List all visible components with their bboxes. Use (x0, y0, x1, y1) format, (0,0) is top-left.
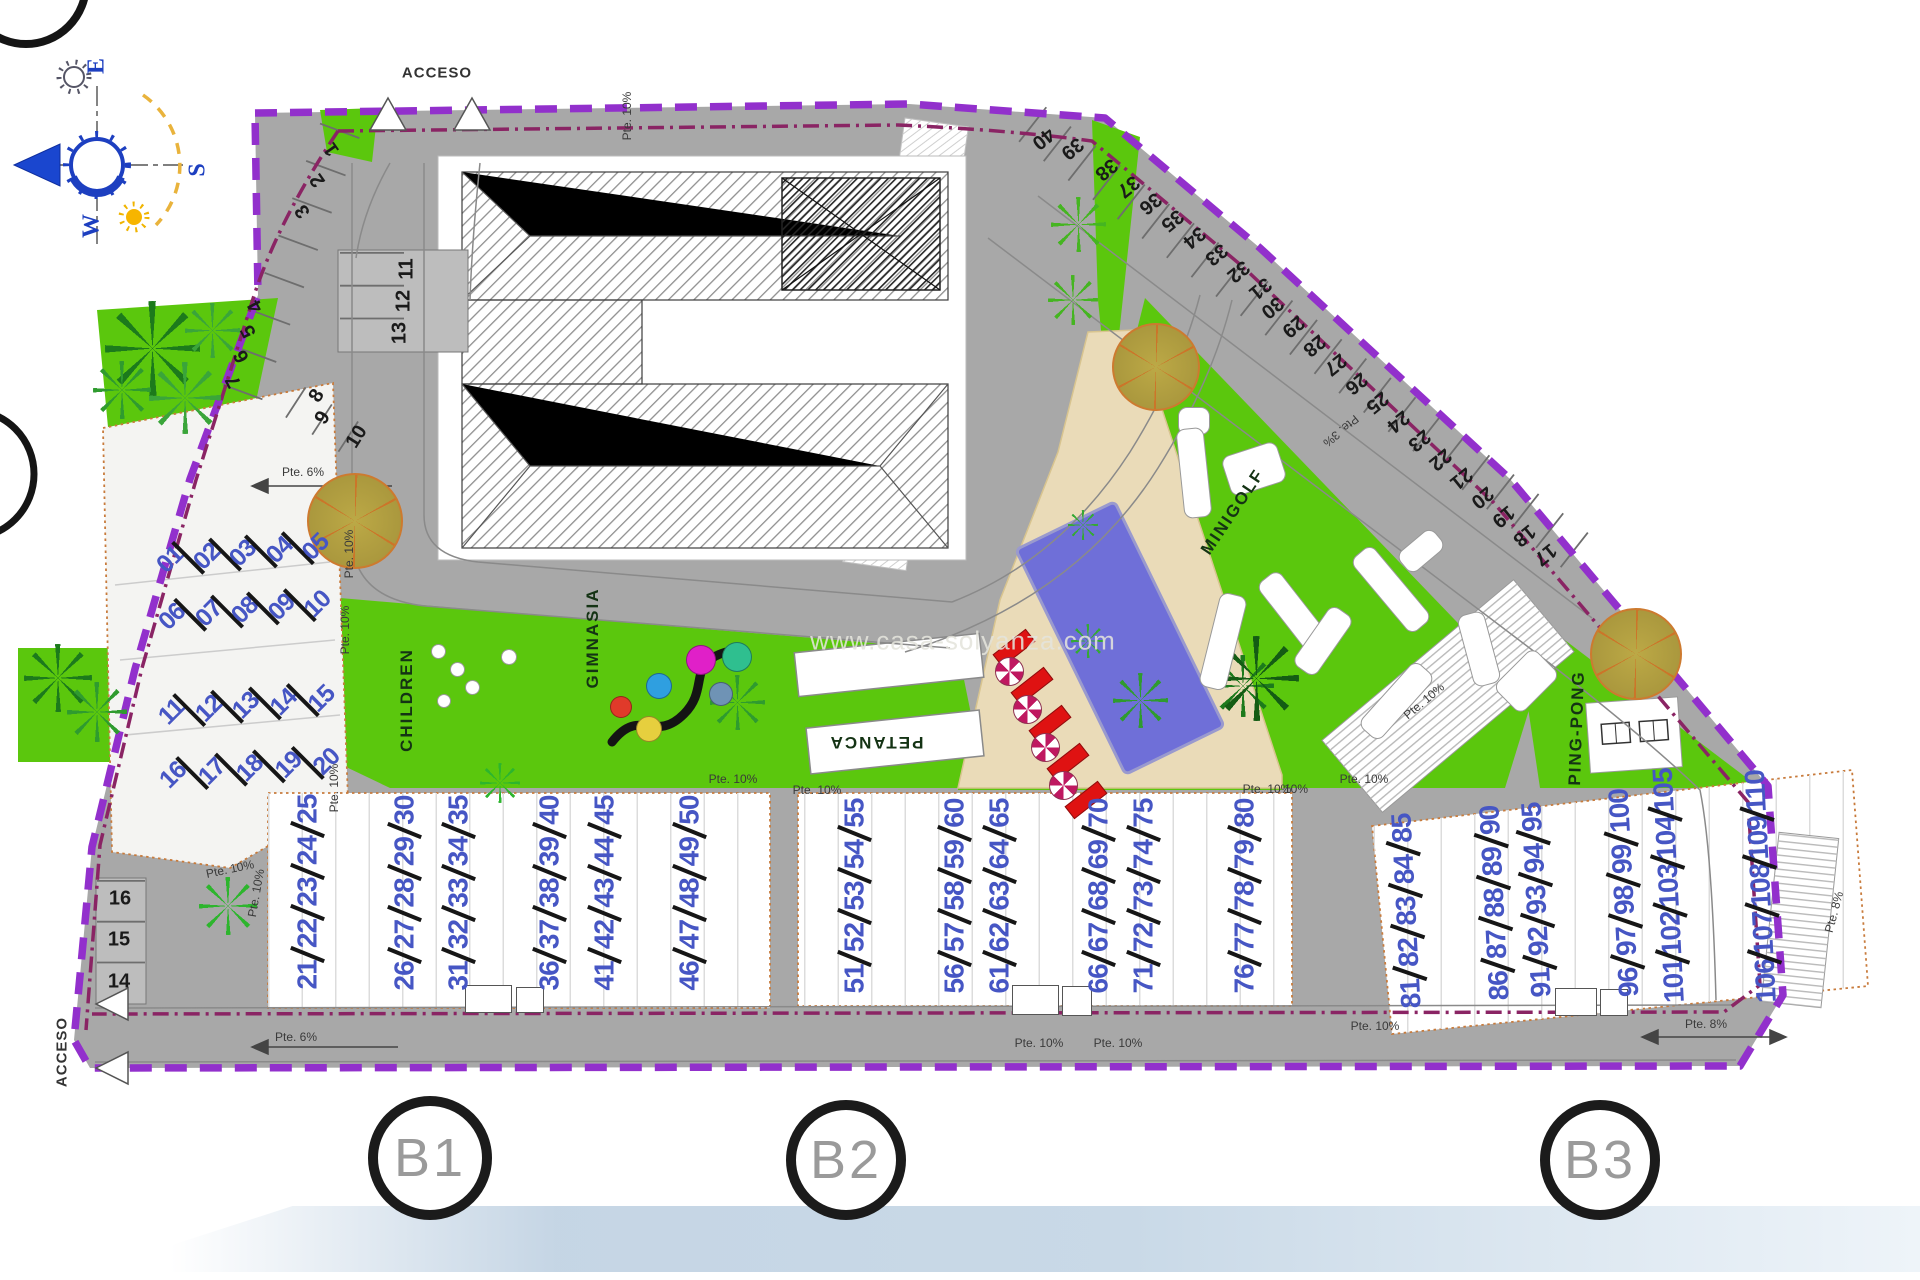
unit-number: 52 (840, 923, 868, 952)
unit-number: 79 (1230, 840, 1258, 869)
unit-number: 81 (1396, 979, 1425, 1010)
unit-number: 67 (1084, 923, 1112, 952)
playground-circle (686, 645, 716, 675)
unit-number-row: 4142434445 (582, 796, 626, 991)
unit-number: 83 (1391, 896, 1420, 927)
unit-number: 33 (444, 878, 472, 907)
slope-label: Pte. 10% (620, 92, 634, 141)
unit-number: 62 (985, 923, 1013, 952)
unit-number-row: 5657585960 (932, 799, 976, 994)
unit-number: 49 (675, 837, 703, 866)
playground-circle (709, 682, 733, 706)
unit-number: 13 (228, 687, 264, 723)
unit-number: 70 (1084, 799, 1112, 828)
slope-label: Pte. 6% (275, 1030, 317, 1044)
unit-number: 08 (227, 592, 263, 628)
slope-label: Pte. 10% (338, 606, 352, 655)
unit-number-row: 6162636465 (977, 799, 1021, 994)
playground-circle (636, 716, 662, 742)
unit-number: 82 (1393, 937, 1422, 968)
slope-label: Pte. 10% (1340, 772, 1389, 786)
unit-number: 76 (1230, 964, 1258, 993)
parking-space-number: 15 (108, 929, 130, 952)
unit-number: 36 (535, 961, 563, 990)
unit-number: 54 (840, 840, 868, 869)
playground-circle (722, 642, 752, 672)
unit-number: 01 (152, 541, 188, 577)
unit-number-row: 6667686970 (1076, 799, 1120, 994)
unit-number: 92 (1523, 926, 1552, 957)
unit-number: 21 (293, 960, 321, 989)
unit-number: 02 (189, 538, 225, 574)
slope-label: Pte. 10% (709, 772, 758, 786)
block-marker-b1: B1 (368, 1096, 492, 1220)
slope-label: Pte. 10% (327, 764, 341, 813)
parasol-icon (1013, 695, 1042, 724)
palm-tree-icon (67, 682, 127, 742)
block-marker-label: B1 (394, 1127, 466, 1189)
block-marker-b2: B2 (786, 1100, 906, 1220)
palm-tree-icon (1051, 197, 1106, 252)
parking-space-number: 13 (389, 322, 412, 344)
unit-number: 22 (293, 919, 321, 948)
unit-number: 40 (535, 796, 563, 825)
slope-label: Pte. 10% (342, 530, 356, 579)
unit-number-row: 7172737475 (1121, 799, 1165, 994)
unit-number: 32 (444, 920, 472, 949)
unit-number: 97 (1612, 926, 1641, 957)
slope-label: Pte. 10% (793, 783, 842, 797)
parasol-icon (1031, 733, 1060, 762)
unit-number: 71 (1129, 964, 1157, 993)
palm-tree-icon (1048, 275, 1098, 325)
unit-number: 07 (191, 595, 227, 631)
unit-number: 75 (1129, 799, 1157, 828)
tree-icon (1590, 608, 1682, 700)
unit-number: 59 (940, 840, 968, 869)
unit-number: 110 (1741, 769, 1771, 813)
unit-number: 48 (675, 878, 703, 907)
palm-tree-icon (185, 303, 240, 358)
unit-number: 04 (261, 532, 297, 568)
compass-west-label: W (79, 214, 106, 238)
unit-number: 42 (590, 920, 618, 949)
parasol-icon (995, 657, 1024, 686)
petanca-area-label: PETANCA (829, 732, 924, 752)
unit-number: 80 (1230, 799, 1258, 828)
parking-space-number: 16 (109, 888, 131, 911)
unit-number: 100 (1605, 788, 1635, 833)
unit-number: 93 (1521, 885, 1550, 916)
unit-number: 37 (535, 920, 563, 949)
palm-tree-icon (93, 361, 151, 419)
unit-number: 63 (985, 881, 1013, 910)
unit-number: 65 (985, 799, 1013, 828)
watermark: www.casa-solyanza.com (810, 626, 1116, 657)
unit-number: 26 (390, 961, 418, 990)
unit-number: 68 (1084, 881, 1112, 910)
unit-number: 29 (390, 837, 418, 866)
parasol-icon (1049, 771, 1078, 800)
unit-number: 61 (985, 964, 1013, 993)
unit-number: 78 (1230, 881, 1258, 910)
unit-number: 57 (940, 923, 968, 952)
slope-label: Pte. 6% (282, 465, 324, 479)
unit-number: 69 (1084, 840, 1112, 869)
unit-number: 30 (390, 796, 418, 825)
unit-number: 94 (1519, 843, 1548, 874)
unit-number: 87 (1481, 929, 1510, 960)
parking-space-number: 12 (393, 290, 416, 312)
unit-number: 45 (590, 796, 618, 825)
slope-label: Pte. 10% (1094, 1036, 1143, 1050)
slope-label: Pte. 10% (1351, 1019, 1400, 1033)
unit-number: 101 (1659, 958, 1689, 1003)
block-marker-label: B3 (1564, 1129, 1636, 1191)
unit-number: 14 (266, 684, 302, 720)
unit-number: 47 (675, 920, 703, 949)
children-area-label: CHILDREN (397, 648, 417, 752)
unit-number: 46 (675, 961, 703, 990)
north-needle-icon (14, 144, 60, 186)
unit-number-row: 2627282930 (382, 796, 426, 991)
unit-number: 17 (194, 753, 230, 789)
unit-number: 34 (444, 837, 472, 866)
unit-number: 28 (390, 878, 418, 907)
unit-number: 50 (675, 796, 703, 825)
block-marker-b3: B3 (1540, 1100, 1660, 1220)
unit-number: 19 (270, 747, 306, 783)
unit-number: 106 (1751, 958, 1781, 1003)
main-building (438, 156, 966, 560)
acceso-top-label: ACCESO (402, 65, 472, 82)
palm-tree-icon (1113, 673, 1168, 728)
unit-number: 108 (1746, 863, 1776, 908)
unit-number: 85 (1387, 813, 1416, 844)
playground-circle (646, 673, 672, 699)
unit-number: 23 (293, 877, 321, 906)
site-plan: www.casa-solyanza.com ACCESOACCESOCHILDR… (0, 0, 1920, 1280)
slope-label: 10% (1284, 782, 1308, 796)
compass-east-label: E (84, 58, 111, 74)
unit-number: 60 (940, 799, 968, 828)
playground-circle (610, 696, 632, 718)
palm-tree-icon (149, 362, 221, 434)
unit-number: 44 (590, 837, 618, 866)
unit-number: 51 (840, 964, 868, 993)
unit-number: 98 (1610, 885, 1639, 916)
unit-number: 86 (1484, 971, 1513, 1002)
parking-space-number: 11 (396, 258, 419, 279)
unit-number-row: 3637383940 (527, 796, 571, 991)
unit-number: 31 (444, 961, 472, 990)
unit-number: 27 (390, 920, 418, 949)
compass-south-label: S (185, 163, 212, 176)
unit-number: 95 (1517, 802, 1546, 833)
acceso-bottom-label: ACCESO (54, 1017, 71, 1087)
unit-number-row: 7677787980 (1222, 799, 1266, 994)
unit-number: 84 (1389, 854, 1418, 885)
unit-number: 24 (293, 836, 321, 865)
block-marker-label: B2 (810, 1129, 882, 1191)
unit-number: 66 (1084, 964, 1112, 993)
unit-number-row: 5152535455 (832, 799, 876, 994)
unit-number: 16 (155, 757, 191, 793)
slope-label: Pte. 10% (1015, 1036, 1064, 1050)
unit-number: 25 (293, 795, 321, 824)
unit-number-row: 4647484950 (667, 796, 711, 991)
unit-number: 55 (840, 799, 868, 828)
unit-number: 90 (1475, 805, 1504, 836)
unit-number: 77 (1230, 923, 1258, 952)
unit-number: 104 (1651, 815, 1681, 860)
unit-number: 41 (590, 961, 618, 990)
slope-label: Pte. 8% (1685, 1017, 1727, 1031)
unit-number: 105 (1649, 768, 1679, 813)
unit-number: 96 (1614, 967, 1643, 998)
unit-number: 39 (535, 837, 563, 866)
unit-number: 03 (225, 535, 261, 571)
unit-number: 99 (1607, 844, 1636, 875)
unit-number: 91 (1526, 968, 1555, 999)
parking-space-number: 14 (108, 971, 130, 994)
unit-number: 103 (1654, 863, 1684, 908)
unit-number: 74 (1129, 840, 1157, 869)
palm-tree-icon (480, 763, 520, 803)
unit-number: 64 (985, 840, 1013, 869)
unit-number: 12 (191, 690, 227, 726)
palm-tree-icon (1068, 510, 1098, 540)
unit-number: 09 (263, 589, 299, 625)
unit-number: 58 (940, 881, 968, 910)
unit-number: 38 (535, 878, 563, 907)
stair-detail-box (516, 987, 544, 1013)
unit-number: 88 (1479, 888, 1508, 919)
tree-icon (1112, 323, 1200, 411)
gimnasia-area-label: GIMNASIA (583, 588, 603, 689)
unit-number-row: 2122232425 (285, 795, 329, 990)
ping-pong-area-label: PING-PONG (1565, 670, 1589, 786)
unit-number: 107 (1748, 911, 1778, 956)
unit-number: 109 (1743, 815, 1773, 860)
unit-number: 73 (1129, 881, 1157, 910)
unit-number: 56 (940, 964, 968, 993)
unit-number: 06 (154, 598, 190, 634)
callout-circle-partial (0, 0, 86, 44)
callout-circle-partial (0, 410, 34, 538)
unit-number: 102 (1656, 911, 1686, 956)
unit-number: 35 (444, 796, 472, 825)
unit-number: 18 (232, 750, 268, 786)
unit-number: 43 (590, 878, 618, 907)
sun-path-arc (143, 95, 180, 225)
unit-number-row: 3132333435 (436, 796, 480, 991)
unit-number: 72 (1129, 923, 1157, 952)
unit-number: 53 (840, 881, 868, 910)
unit-number: 89 (1477, 846, 1506, 877)
